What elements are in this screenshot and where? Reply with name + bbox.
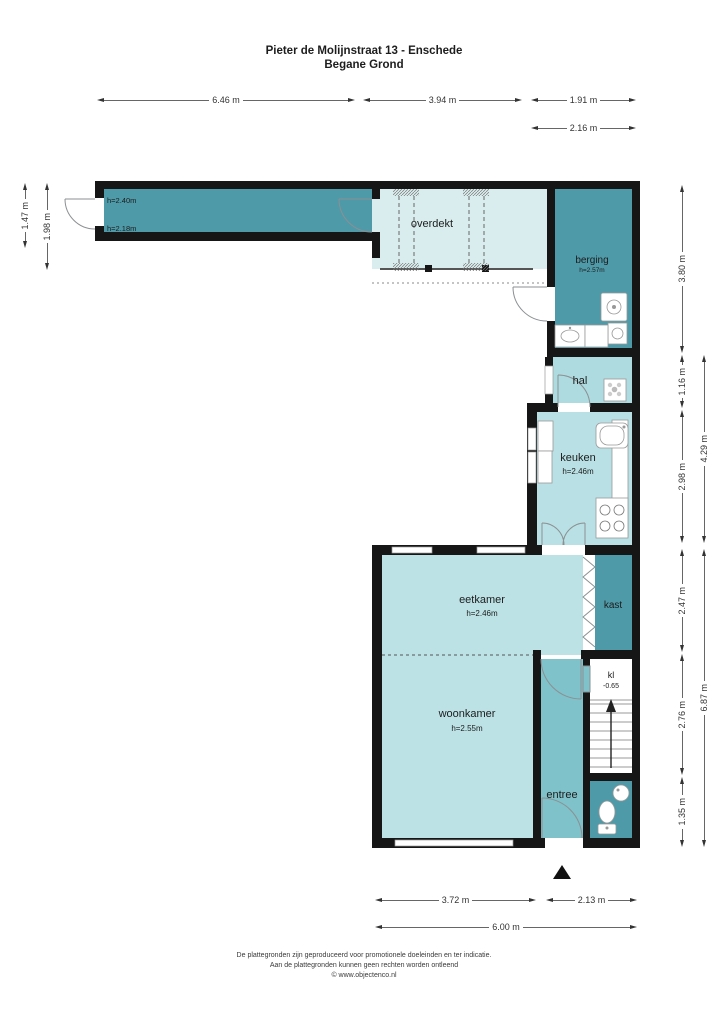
window	[392, 547, 432, 553]
eetkamer-label: eetkamer	[459, 594, 505, 606]
kl-level-label: -0.65	[603, 683, 619, 690]
room-woonkamer	[382, 655, 533, 838]
footer-line-1: De plattegronden zijn geproduceerd voor …	[0, 951, 728, 961]
hatch-strip	[393, 263, 419, 271]
toilet-icon	[599, 801, 615, 823]
room-corridor	[104, 189, 372, 232]
faucet-dot	[569, 327, 571, 329]
corridor-height-bottom-label: h=2.18m	[107, 224, 136, 233]
keuken-height-label: h=2.46m	[562, 467, 594, 476]
kast-label: kast	[604, 600, 623, 611]
window	[528, 428, 536, 450]
vent-dot	[608, 392, 612, 396]
vent-dot	[608, 383, 612, 387]
stove-icon	[596, 498, 628, 538]
cabinet	[585, 325, 608, 347]
vent-dot	[617, 392, 621, 396]
keuken-label: keuken	[560, 452, 595, 464]
corridor-height-top-label: h=2.40m	[107, 196, 136, 205]
cabinet	[538, 451, 552, 483]
window	[395, 840, 513, 846]
door-arc	[513, 287, 547, 321]
room-entree	[541, 659, 583, 838]
berging-label: berging	[575, 255, 608, 266]
vent-dot	[617, 383, 621, 387]
hatch-strip	[463, 188, 489, 196]
window	[477, 547, 525, 553]
kl-door	[583, 666, 590, 692]
footer-line-2: Aan de plattegronden kunnen geen rechten…	[0, 961, 728, 971]
floor-plan: h=2.40m h=2.18m overdekt berging h=2.57m…	[0, 0, 728, 1030]
room-overdekt	[372, 189, 547, 269]
boiler-dial	[612, 328, 623, 339]
eetkamer-height-label: h=2.46m	[466, 609, 498, 618]
washer-dot	[612, 305, 616, 309]
floorplan-page: Pieter de Molijnstraat 13 - Enschede Beg…	[0, 0, 728, 1030]
hal-label: hal	[573, 375, 588, 387]
woonkamer-label: woonkamer	[438, 708, 496, 720]
footer-disclaimer: De plattegronden zijn geproduceerd voor …	[0, 951, 728, 981]
post	[425, 265, 432, 272]
woonkamer-height-label: h=2.55m	[451, 724, 483, 733]
sink-icon	[561, 330, 579, 342]
hatch-strip	[463, 263, 489, 271]
corner-sink-icon	[613, 785, 629, 801]
footer-line-3: © www.objectenco.nl	[0, 971, 728, 981]
kl-label: kl	[608, 670, 615, 680]
faucet-dot	[617, 789, 620, 792]
entree-label: entree	[546, 789, 577, 801]
north-arrow-icon	[553, 865, 571, 879]
door-arc	[65, 199, 95, 229]
overdekt-label: overdekt	[411, 218, 453, 230]
flush-dot	[606, 827, 609, 830]
berging-height-label: h=2.57m	[579, 267, 604, 274]
window	[528, 452, 536, 483]
faucet-dot	[623, 426, 626, 429]
vent-dot	[612, 387, 618, 393]
window	[545, 366, 553, 394]
cabinet	[538, 421, 553, 451]
hatch-strip	[393, 188, 419, 196]
